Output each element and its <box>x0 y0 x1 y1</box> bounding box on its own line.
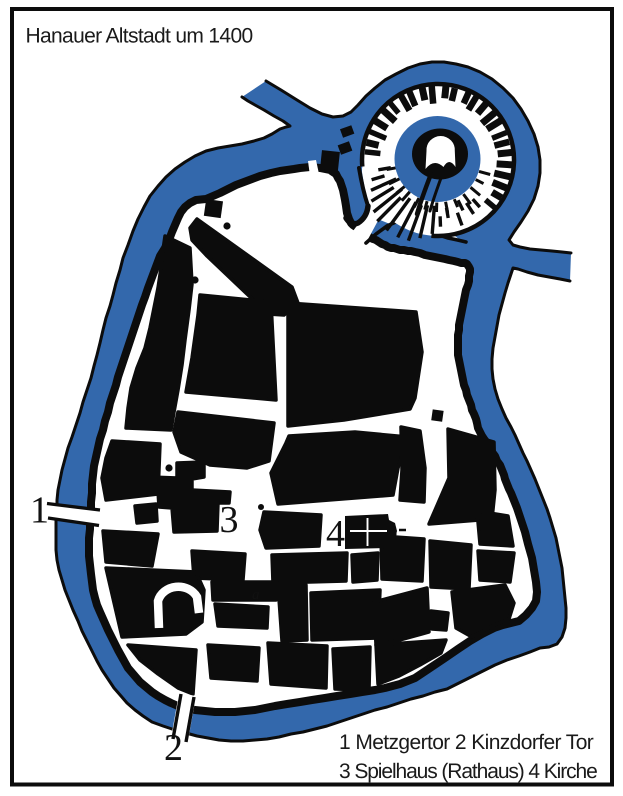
svg-text:4: 4 <box>326 513 345 555</box>
svg-text:a: a <box>252 587 260 603</box>
svg-text:1: 1 <box>30 490 49 532</box>
svg-text:3 Spielhaus (Rathaus) 4 Kirche: 3 Spielhaus (Rathaus) 4 Kirche <box>339 760 597 783</box>
svg-text:2: 2 <box>164 727 183 769</box>
svg-text:1 Metzgertor 2 Kinzdorfer Tor: 1 Metzgertor 2 Kinzdorfer Tor <box>339 731 594 754</box>
svg-text:3: 3 <box>220 499 239 541</box>
svg-text:Hanauer Altstadt um 1400: Hanauer Altstadt um 1400 <box>26 25 253 48</box>
